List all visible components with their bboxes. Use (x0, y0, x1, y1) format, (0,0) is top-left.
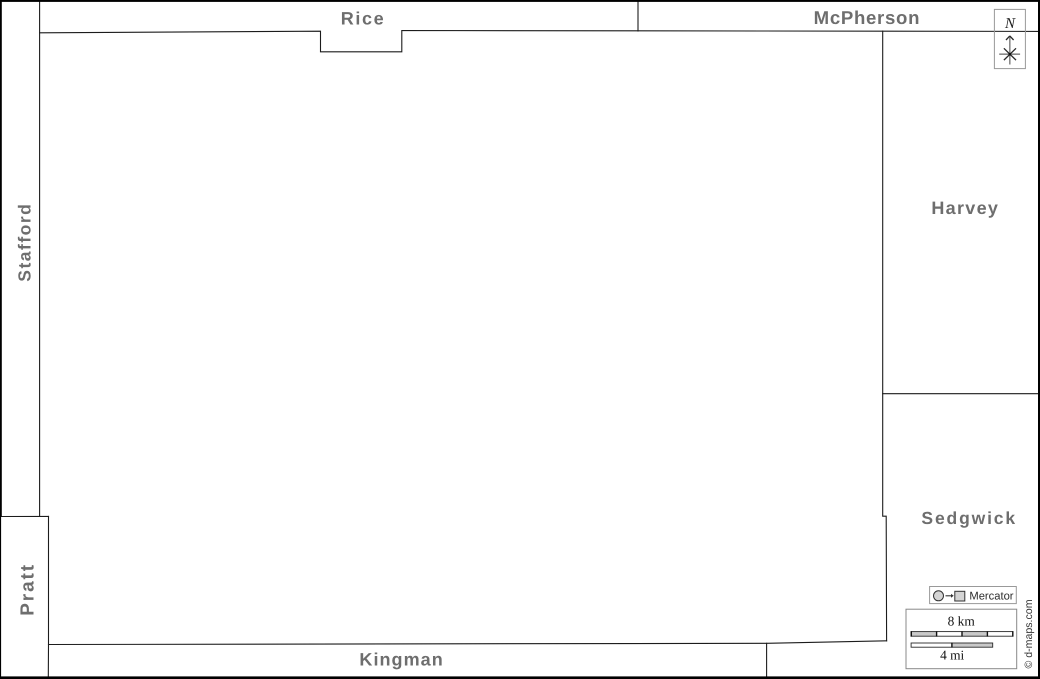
svg-text:© d-maps.com: © d-maps.com (1023, 599, 1035, 668)
svg-text:Sedgwick: Sedgwick (921, 508, 1017, 528)
svg-text:Mercator: Mercator (969, 591, 1013, 603)
svg-text:8 km: 8 km (948, 614, 976, 629)
svg-text:4 mi: 4 mi (940, 648, 964, 663)
svg-text:McPherson: McPherson (814, 7, 921, 28)
svg-text:Stafford: Stafford (15, 203, 35, 282)
svg-text:Rice: Rice (341, 9, 386, 29)
svg-text:N: N (1004, 16, 1016, 32)
svg-text:Harvey: Harvey (931, 198, 999, 218)
svg-text:Kingman: Kingman (359, 649, 443, 669)
svg-text:Pratt: Pratt (17, 563, 38, 616)
